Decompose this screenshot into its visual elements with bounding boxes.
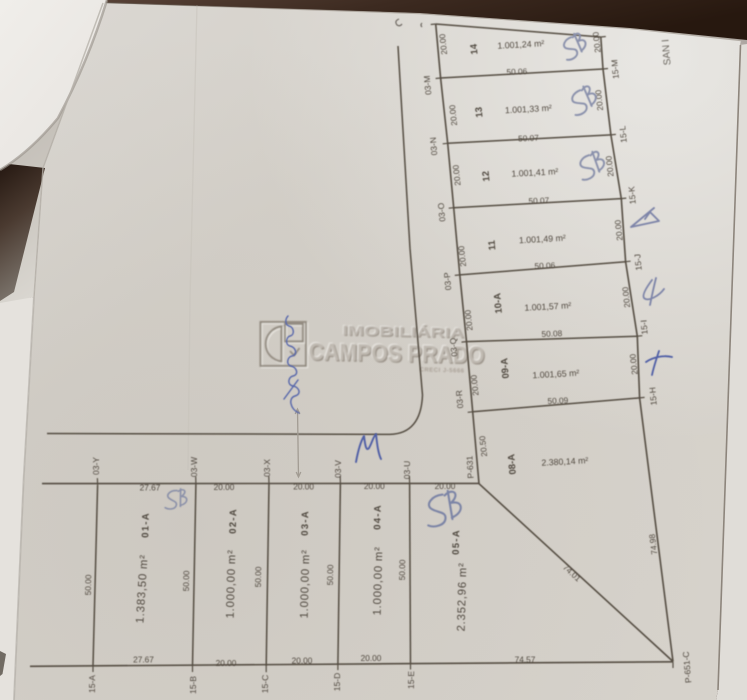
svg-text:09-A: 09-A [499,357,512,379]
svg-text:03-R: 03-R [454,390,466,409]
svg-text:03-N: 03-N [428,137,440,156]
svg-text:03-U: 03-U [402,461,412,479]
svg-text:03-A: 03-A [300,510,311,536]
svg-text:03-M: 03-M [422,75,434,95]
svg-text:20.00: 20.00 [214,482,235,492]
svg-text:15-D: 15-D [332,673,342,692]
svg-text:50.07: 50.07 [528,195,550,206]
svg-text:20.00: 20.00 [293,482,314,492]
svg-text:03-O: 03-O [436,202,448,222]
svg-text:P-631: P-631 [464,455,475,478]
svg-text:03-P: 03-P [442,272,454,291]
svg-text:03-X: 03-X [262,459,272,477]
svg-text:03-Y: 03-Y [91,457,101,475]
svg-text:15-M: 15-M [609,59,621,79]
svg-text:03-V: 03-V [333,460,343,478]
svg-text:2.352,96 m²: 2.352,96 m² [456,562,470,631]
svg-text:05-A: 05-A [451,529,462,555]
svg-text:74.57: 74.57 [515,655,536,665]
svg-text:15-A: 15-A [87,675,97,693]
svg-text:20.00: 20.00 [435,481,456,491]
svg-text:15-B: 15-B [188,676,198,694]
svg-text:1.000,00 m²: 1.000,00 m² [225,549,239,618]
svg-text:20.00: 20.00 [364,481,385,491]
svg-text:50.00: 50.00 [83,574,93,595]
svg-text:50.00: 50.00 [397,559,407,580]
svg-text:15-J: 15-J [632,254,643,271]
svg-text:27.67: 27.67 [140,483,161,493]
svg-text:20.00: 20.00 [361,653,382,663]
svg-text:03-Q: 03-Q [448,337,460,357]
svg-text:14: 14 [469,43,481,55]
svg-text:50.06: 50.06 [506,66,528,77]
svg-text:15-K: 15-K [626,186,638,205]
svg-text:50.07: 50.07 [518,132,540,143]
svg-text:27.67: 27.67 [133,655,154,665]
svg-text:02-A: 02-A [228,508,239,534]
svg-text:50.06: 50.06 [534,260,556,271]
svg-text:20.00: 20.00 [292,656,313,666]
svg-text:50.08: 50.08 [541,328,563,339]
svg-text:13: 13 [474,106,486,117]
svg-text:50.09: 50.09 [547,395,569,406]
svg-text:11: 11 [487,239,499,251]
svg-text:03-W: 03-W [189,457,199,477]
svg-text:CRECI J-5666: CRECI J-5666 [419,367,464,374]
svg-text:1.000,00 m²: 1.000,00 m² [372,546,386,615]
svg-text:01-A: 01-A [140,512,151,538]
svg-text:08-A: 08-A [506,453,519,475]
svg-text:15-H: 15-H [647,387,659,406]
svg-text:50.00: 50.00 [181,570,191,591]
svg-text:04-A: 04-A [372,504,383,530]
svg-text:50.00: 50.00 [325,564,335,585]
svg-text:15-E: 15-E [406,671,416,689]
svg-text:SAN I: SAN I [660,39,673,66]
svg-text:20.00: 20.00 [216,658,237,668]
svg-text:15-L: 15-L [617,125,628,143]
svg-text:15-C: 15-C [260,675,270,694]
svg-text:15-I: 15-I [638,320,649,335]
svg-text:50.00: 50.00 [253,566,263,587]
svg-text:1.000,00 m²: 1.000,00 m² [299,549,313,618]
svg-text:10-A: 10-A [492,292,505,314]
svg-text:12: 12 [481,170,493,181]
